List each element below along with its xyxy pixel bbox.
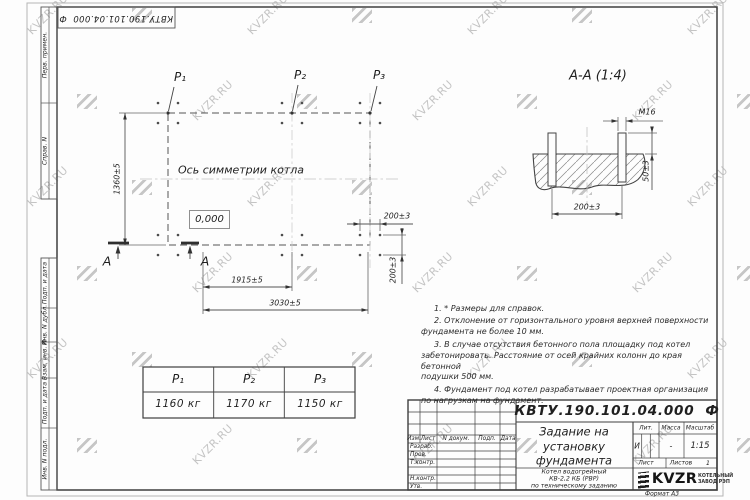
lit-value: И (634, 442, 640, 451)
notes-block: 1. * Размеры для справок. 2. Отклонение … (421, 304, 720, 408)
table-value-p2: 1170 кг (226, 398, 271, 410)
title-block-doc-number: КВТУ.190.101.04.000 Ф (514, 403, 719, 419)
kvzr-logo-text: KVZR (651, 471, 698, 488)
table-value-p1: 1160 кг (155, 398, 200, 410)
scale-value: 1:15 (690, 441, 709, 451)
dim-1360: 1360±5 (113, 163, 122, 194)
table-header-p2: P₂ (243, 372, 255, 386)
sheet-label: Лист (638, 460, 653, 467)
col-list: Лист (421, 436, 436, 442)
section-title: А-А (1:4) (569, 69, 627, 84)
note-3: 3. В случае отсутствия бетонного пола пл… (421, 340, 720, 384)
section-letter-right: А (201, 254, 210, 269)
side-label-podp-data-1: Подп. и дата (42, 262, 49, 304)
section-letter-left: А (103, 254, 112, 269)
note-1: 1. * Размеры для справок. (421, 304, 720, 315)
side-label-sprav-n: Справ. N (42, 137, 49, 165)
table-header-p3: P₃ (314, 372, 326, 386)
table-value-p3: 1150 кг (297, 398, 342, 410)
dim-bolt-protrusion: 50±3 (642, 160, 651, 181)
side-label-podp-data-2: Подп. и дата (42, 382, 49, 424)
kvzr-logo-caption: КОТЕЛЬНЫЙ ЗАВОД РЭП (698, 474, 733, 485)
col-data: Дата (500, 436, 515, 442)
top-stamp-doc-number: КВТУ.190.101.04.000 Ф (59, 13, 173, 23)
row-prov: Пров. (410, 452, 427, 458)
point-label-p3: P₃ (373, 68, 385, 82)
row-razrab: Разраб. (410, 444, 433, 450)
side-label-vzam-inv: Взам. инв. N (42, 340, 49, 380)
product-name: Котел водогрейный КВ-2,2 КБ (РВР) по тех… (531, 470, 617, 491)
elevation-mark: 0,000 (189, 210, 230, 229)
table-header-p1: P₁ (172, 372, 184, 386)
boiler-axis-label: Ось симметрии котла (178, 164, 304, 177)
row-nkontr: Н.контр. (410, 476, 436, 482)
sheets-label: Листов (670, 460, 692, 467)
row-tkontr: Т.контр. (410, 460, 435, 466)
dim-200-vertical: 200±3 (389, 257, 398, 283)
format-label: Формат А3 (645, 490, 679, 497)
row-utv: Утв. (410, 484, 422, 490)
point-label-p1: P₁ (174, 70, 186, 84)
point-label-p2: P₂ (294, 68, 306, 82)
side-label-inv-podl: Инв. N подл. (42, 439, 49, 480)
mass-value: - (670, 442, 673, 451)
dim-3030: 3030±5 (269, 299, 300, 308)
sheets-value: 1 (706, 459, 710, 467)
col-izm: Изм. (407, 436, 421, 442)
note-2: 2. Отклонение от горизонтального уровня … (421, 316, 720, 338)
bolt-thread-label: M16 (638, 108, 655, 117)
drawing-title: Задание на установку фундамента (536, 424, 612, 468)
dim-200-horizontal: 200±3 (384, 212, 410, 221)
dim-1915: 1915±5 (231, 276, 262, 285)
lit-label: Лит. (639, 425, 653, 432)
side-label-perv-primen: Перв. примен. (42, 32, 49, 78)
kvzr-logo-icon (638, 471, 649, 488)
col-podp: Подп. (478, 436, 496, 442)
col-n-dokum: N докум. (443, 436, 470, 442)
drawing-sheet: KVZR.RUKVZR.RUKVZR.RUKVZR.RUKVZR.RUKVZR.… (0, 0, 750, 500)
dim-bolt-spacing: 200±3 (574, 203, 600, 212)
scale-label: Масштаб (686, 425, 715, 432)
mass-label: Масса (661, 425, 680, 432)
